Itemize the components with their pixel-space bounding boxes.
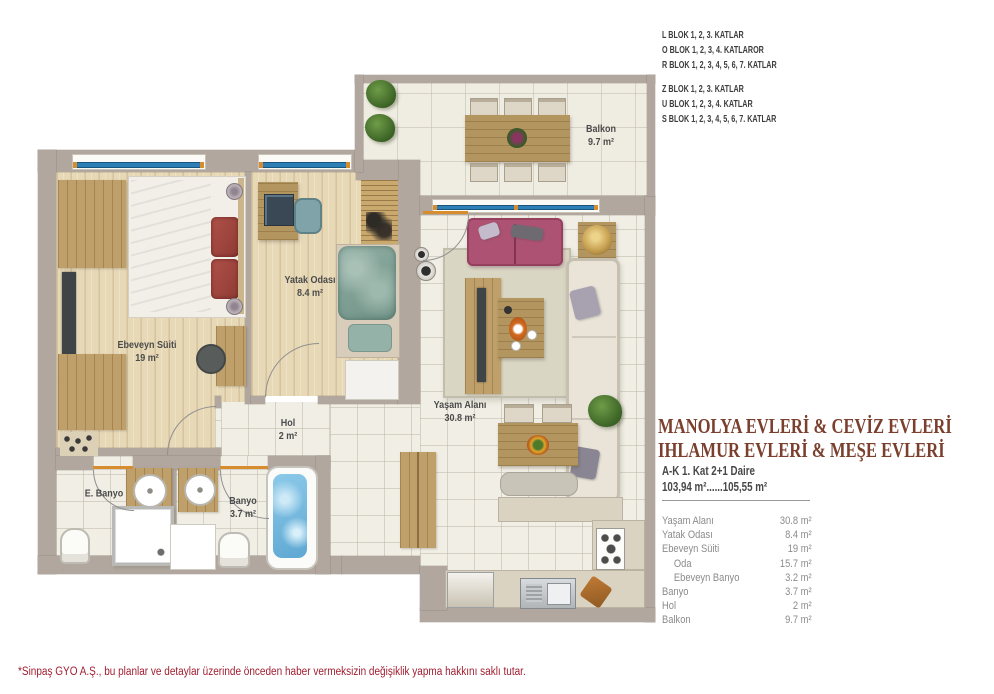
room-label-ebeveyn-suiti: Ebeveyn Süiti 19 m²	[117, 339, 176, 365]
area-value: 3.7 m²	[785, 585, 812, 599]
room-name: Ebeveyn Süiti	[117, 339, 176, 352]
kitchen-counter	[498, 497, 623, 522]
window-frame-mark	[259, 162, 263, 168]
fridge	[447, 572, 494, 608]
area-value: 15.7 m²	[780, 557, 812, 571]
wall	[420, 608, 655, 622]
table-row: Balkon 9.7 m²	[662, 613, 812, 627]
sofa-cushion-gap	[572, 336, 616, 338]
wall	[251, 396, 265, 404]
door-leaf	[170, 524, 216, 570]
block-line: S BLOK 1, 2, 3, 4, 5, 6, 7. KATLAR	[662, 112, 776, 127]
coffee-cup	[504, 306, 512, 314]
computer-monitor	[264, 194, 294, 226]
room-area: 3.7 m²	[229, 508, 257, 521]
floor-speaker	[416, 261, 436, 281]
table-row: Ebeveyn Süiti 19 m²	[662, 542, 812, 556]
fruit-bowl	[527, 435, 549, 455]
nightstand	[345, 360, 399, 400]
chair	[504, 404, 534, 423]
room-label-yasam-alani: Yaşam Alanı 30.8 m²	[434, 399, 487, 425]
window-frame-mark	[200, 162, 204, 168]
shower	[112, 506, 174, 566]
unit-subtitle: A-K 1. Kat 2+1 Daire	[662, 463, 755, 478]
room-name: Hol	[279, 417, 298, 430]
table-row: Hol 2 m²	[662, 599, 812, 613]
wall	[56, 456, 93, 470]
area-value: 30.8 m²	[780, 514, 812, 528]
area-label: Ebeveyn Banyo	[662, 571, 739, 585]
shoe-rack	[60, 432, 98, 456]
window-glass	[76, 162, 202, 168]
room-name: Yatak Odası	[284, 274, 335, 287]
table-centerpiece	[507, 128, 527, 148]
window-frame-mark	[346, 162, 350, 168]
wall	[420, 566, 447, 610]
area-table: Yaşam Alanı 30.8 m² Yatak Odası 8.4 m² E…	[662, 514, 812, 628]
closet-divider	[417, 452, 419, 548]
room-area: 30.8 m²	[434, 412, 487, 425]
room-area: 9.7 m²	[586, 136, 616, 149]
coffee-cup	[511, 341, 521, 351]
sink-drainboard	[526, 584, 542, 602]
window-frame-mark	[594, 205, 598, 210]
block-line: Z BLOK 1, 2, 3. KATLAR	[662, 82, 776, 97]
sink-basin	[547, 583, 571, 605]
door-sill	[423, 211, 468, 214]
desk-chair	[196, 344, 226, 374]
block-floors-list-1: L BLOK 1, 2, 3. KATLAR O BLOK 1, 2, 3, 4…	[662, 28, 777, 73]
chair	[504, 163, 532, 182]
toilet	[60, 528, 90, 564]
area-label: Yaşam Alanı	[662, 514, 714, 528]
room-name: Yaşam Alanı	[434, 399, 487, 412]
single-bed-blanket	[338, 246, 396, 320]
balcony-wall	[355, 75, 363, 172]
window-glass	[262, 162, 348, 168]
closet-clothes	[366, 212, 392, 240]
project-title-line2: IHLAMUR EVLERİ & MEŞE EVLERİ	[658, 438, 952, 462]
wall	[316, 456, 330, 574]
project-title-line1: MANOLYA EVLERİ & CEVİZ EVLERİ	[658, 414, 952, 438]
room-label-e-banyo: E. Banyo	[85, 488, 124, 501]
chair	[470, 163, 498, 182]
room-area: 2 m²	[279, 430, 298, 443]
area-label: Yatak Odası	[662, 528, 713, 542]
serving-tray	[509, 317, 527, 341]
room-label-hol: Hol 2 m²	[279, 417, 298, 443]
area-value: 3.2 m²	[785, 571, 812, 585]
door-sill	[93, 466, 133, 469]
kitchen-sink	[520, 578, 576, 609]
door-sill	[220, 466, 268, 469]
desk-chair	[294, 198, 322, 234]
block-floors-list-2: Z BLOK 1, 2, 3. KATLAR U BLOK 1, 2, 3, 4…	[662, 82, 776, 127]
table-row: Banyo 3.7 m²	[662, 585, 812, 599]
stove	[596, 528, 625, 570]
wall	[398, 160, 420, 404]
room-name: E. Banyo	[85, 488, 124, 501]
table-row: Yaşam Alanı 30.8 m²	[662, 514, 812, 528]
room-name: Banyo	[229, 495, 257, 508]
room-label-banyo: Banyo 3.7 m²	[229, 495, 257, 521]
gold-tray	[582, 225, 612, 255]
block-line: O BLOK 1, 2, 3, 4. KATLAROR	[662, 43, 777, 58]
window-frame-mark	[433, 205, 437, 210]
window-frame-mark	[73, 162, 77, 168]
project-title: MANOLYA EVLERİ & CEVİZ EVLERİ IHLAMUR EV…	[658, 414, 952, 462]
table-row: Oda 15.7 m²	[662, 557, 812, 571]
bedside-lamp	[226, 298, 243, 315]
plant	[365, 114, 395, 142]
unit-area-range: 103,94 m²......105,55 m²	[662, 479, 767, 494]
area-label: Banyo	[662, 585, 689, 599]
bedside-lamp	[226, 183, 243, 200]
table-row: Ebeveyn Banyo 3.2 m²	[662, 571, 812, 585]
coffee-cup	[527, 330, 537, 340]
balcony-wall	[647, 75, 655, 196]
floor-plan: Ebeveyn Süiti 19 m² Yatak Odası 8.4 m² H…	[0, 0, 660, 660]
wardrobe	[58, 180, 126, 268]
bed-pillow	[211, 259, 239, 299]
dresser-cabinet	[58, 354, 126, 430]
block-line: U BLOK 1, 2, 3, 4. KATLAR	[662, 97, 776, 112]
wall	[645, 196, 655, 622]
single-bed-pillow	[348, 324, 392, 352]
chair	[538, 163, 566, 182]
disclaimer-text: *Sinpaş GYO A.Ş., bu planlar ve detaylar…	[18, 666, 526, 678]
wall	[342, 556, 420, 574]
table-row: Yatak Odası 8.4 m²	[662, 528, 812, 542]
area-value: 2 m²	[793, 599, 812, 613]
block-line: L BLOK 1, 2, 3. KATLAR	[662, 28, 777, 43]
dining-bench	[500, 472, 578, 496]
area-label: Ebeveyn Süiti	[662, 542, 719, 556]
toilet	[218, 532, 250, 568]
block-line: R BLOK 1, 2, 3, 4, 5, 6, 7. KATLAR	[662, 58, 777, 73]
area-value: 19 m²	[788, 542, 812, 556]
plant	[366, 80, 396, 108]
window-frame-mark	[514, 205, 518, 210]
tv-panel	[62, 272, 76, 354]
room-area: 8.4 m²	[284, 287, 335, 300]
balcony-wall	[355, 75, 655, 83]
bed-duvet	[131, 180, 211, 312]
bathroom-sink	[133, 474, 167, 508]
tv-screen	[477, 288, 486, 382]
room-label-balkon: Balkon 9.7 m²	[586, 123, 616, 149]
room-label-yatak-odasi: Yatak Odası 8.4 m²	[284, 274, 335, 300]
area-label: Oda	[662, 557, 692, 571]
bathroom-sink	[184, 474, 216, 506]
area-value: 8.4 m²	[785, 528, 812, 542]
bed-pillow	[211, 217, 239, 257]
area-label: Hol	[662, 599, 676, 613]
wall	[38, 150, 56, 574]
area-value: 9.7 m²	[785, 613, 812, 627]
area-label: Balkon	[662, 613, 691, 627]
room-name: Balkon	[586, 123, 616, 136]
room-area: 19 m²	[117, 352, 176, 365]
chair	[542, 404, 572, 423]
bathtub-water	[273, 474, 307, 558]
divider-line	[662, 500, 810, 501]
plant	[588, 395, 622, 427]
